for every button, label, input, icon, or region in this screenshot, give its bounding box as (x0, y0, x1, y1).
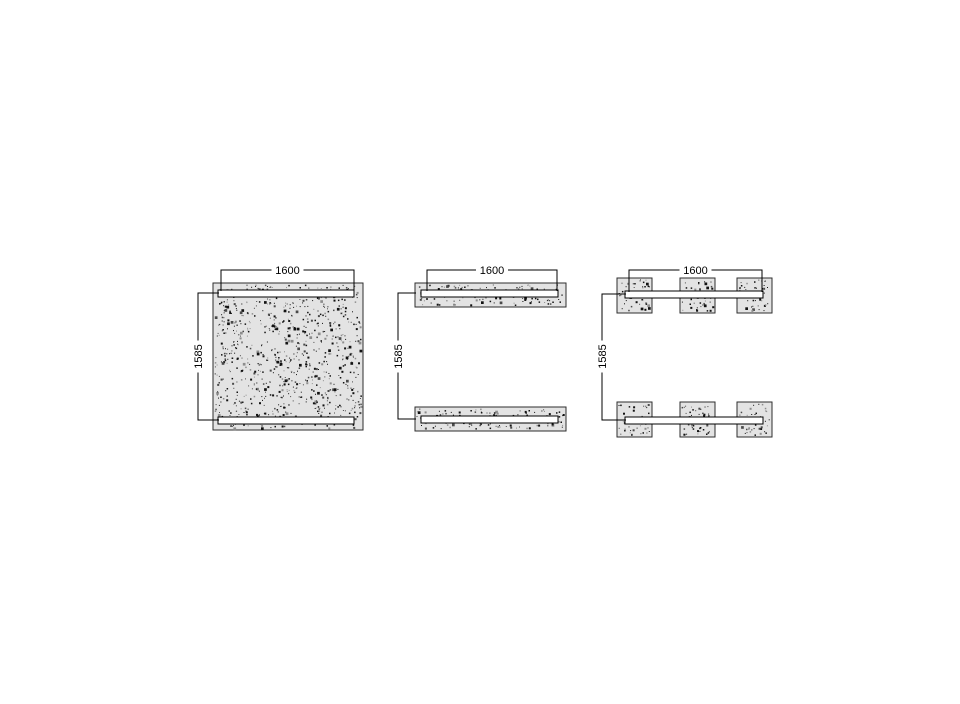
speckle-dot (325, 316, 326, 317)
speckle-dot (475, 428, 477, 430)
speckle-dot (317, 411, 319, 413)
speckle-dot (229, 370, 230, 371)
speckle-dot (267, 358, 268, 359)
speckle-dot (256, 285, 257, 286)
speckle-dot (218, 333, 219, 334)
speckle-dot (254, 384, 255, 385)
speckle-dot (446, 285, 449, 288)
speckle-dot (243, 315, 244, 316)
speckle-dot (355, 402, 356, 403)
speckle-dot (633, 429, 635, 431)
speckle-dot (634, 283, 636, 285)
speckle-dot (267, 386, 269, 388)
speckle-dot (267, 360, 268, 361)
speckle-dot (755, 300, 756, 301)
speckle-dot (274, 305, 276, 307)
speckle-dot (316, 408, 317, 409)
speckle-dot (249, 364, 250, 365)
speckle-dot (357, 292, 359, 294)
speckle-dot (229, 410, 231, 412)
speckle-dot (528, 285, 529, 286)
speckle-dot (227, 359, 228, 360)
speckle-dot (252, 355, 254, 357)
speckle-dot (421, 425, 422, 426)
speckle-dot (349, 346, 352, 349)
speckle-dot (328, 349, 331, 352)
speckle-dot (347, 388, 348, 389)
speckle-dot (547, 425, 548, 426)
speckle-dot (305, 363, 307, 365)
speckle-dot (487, 413, 488, 414)
speckle-dot (264, 405, 265, 406)
speckle-dot (449, 427, 451, 429)
speckle-dot (225, 333, 226, 334)
speckle-dot (756, 413, 758, 415)
speckle-dot (261, 396, 262, 397)
speckle-dot (232, 383, 234, 385)
speckle-dot (317, 323, 318, 324)
speckle-dot (282, 426, 284, 428)
speckle-dot (321, 340, 323, 342)
speckle-dot (633, 410, 635, 412)
speckle-dot (225, 358, 227, 360)
speckle-dot (233, 427, 236, 430)
speckle-dot (709, 431, 710, 432)
speckle-dot (277, 352, 279, 354)
speckle-dot (626, 300, 627, 301)
speckle-dot (230, 412, 232, 414)
speckle-dot (297, 371, 298, 372)
speckle-dot (221, 343, 223, 345)
speckle-dot (323, 304, 324, 305)
speckle-dot (682, 302, 683, 303)
speckle-dot (644, 309, 646, 311)
fig2-height-dimension-label: 1585 (393, 344, 405, 368)
speckle-dot (643, 406, 644, 407)
speckle-dot (761, 426, 763, 428)
speckle-dot (308, 288, 309, 289)
speckle-dot (352, 311, 353, 312)
speckle-dot (263, 355, 265, 357)
speckle-dot (356, 294, 358, 296)
speckle-dot (316, 384, 318, 386)
speckle-dot (306, 353, 308, 355)
speckle-dot (326, 287, 328, 289)
speckle-dot (321, 363, 323, 365)
speckle-dot (280, 365, 282, 367)
speckle-dot (243, 331, 245, 333)
speckle-dot (288, 285, 290, 287)
speckle-dot (699, 431, 700, 432)
speckle-dot (476, 299, 478, 301)
speckle-dot (231, 321, 234, 324)
speckle-dot (284, 370, 285, 371)
speckle-dot (296, 356, 297, 357)
speckle-dot (328, 311, 330, 313)
speckle-dot (459, 285, 460, 286)
speckle-dot (323, 380, 324, 381)
speckle-dot (233, 388, 234, 389)
speckle-dot (326, 298, 327, 299)
speckle-dot (358, 362, 360, 364)
speckle-dot (284, 337, 285, 338)
speckle-dot (352, 353, 353, 354)
speckle-dot (330, 382, 332, 384)
speckle-dot (549, 413, 551, 415)
speckle-dot (288, 335, 291, 338)
speckle-dot (685, 406, 686, 407)
speckle-dot (348, 288, 349, 289)
speckle-dot (290, 323, 292, 325)
speckle-dot (305, 285, 307, 287)
speckle-dot (692, 409, 694, 411)
speckle-dot (744, 287, 745, 288)
speckle-dot (272, 331, 274, 333)
speckle-dot (353, 356, 354, 357)
speckle-dot (223, 348, 224, 349)
speckle-dot (700, 302, 702, 304)
speckle-dot (246, 302, 247, 303)
speckle-dot (710, 281, 712, 283)
speckle-dot (499, 298, 501, 300)
speckle-dot (699, 428, 701, 430)
speckle-dot (274, 319, 275, 320)
speckle-dot (348, 399, 349, 400)
speckle-dot (275, 366, 276, 367)
speckle-dot (273, 414, 274, 415)
speckle-dot (227, 328, 228, 329)
speckle-dot (753, 300, 755, 302)
speckle-dot (296, 346, 297, 347)
speckle-dot (259, 391, 260, 392)
speckle-dot (747, 415, 748, 416)
speckle-dot (223, 333, 225, 335)
speckle-dot (236, 399, 237, 400)
speckle-dot (233, 344, 235, 346)
speckle-dot (309, 369, 310, 370)
speckle-dot (481, 412, 483, 414)
speckle-dot (258, 288, 259, 289)
speckle-dot (418, 411, 421, 414)
speckle-dot (287, 380, 289, 382)
speckle-dot (704, 281, 705, 282)
speckle-dot (316, 337, 318, 339)
speckle-dot (622, 308, 623, 309)
speckle-dot (519, 427, 520, 428)
speckle-dot (225, 348, 226, 349)
speckle-dot (646, 280, 647, 281)
speckle-dot (270, 318, 271, 319)
speckle-dot (264, 301, 267, 304)
speckle-dot (279, 391, 281, 393)
speckle-dot (275, 360, 276, 361)
speckle-dot (219, 405, 220, 406)
speckle-dot (248, 331, 250, 333)
speckle-dot (322, 315, 324, 317)
speckle-dot (631, 434, 633, 436)
speckle-dot (516, 428, 517, 429)
speckle-dot (313, 349, 314, 350)
speckle-dot (691, 407, 692, 408)
speckle-dot (232, 358, 234, 360)
speckle-dot (759, 309, 760, 310)
speckle-dot (250, 348, 252, 350)
speckle-dot (703, 414, 705, 416)
speckle-dot (315, 394, 316, 395)
speckle-dot (434, 298, 436, 300)
speckle-dot (295, 381, 297, 383)
speckle-dot (338, 350, 340, 352)
speckle-dot (268, 414, 269, 415)
speckle-dot (685, 282, 686, 283)
speckle-dot (764, 431, 765, 432)
speckle-dot (330, 389, 332, 391)
speckle-dot (234, 322, 235, 323)
speckle-dot (455, 304, 456, 305)
speckle-dot (225, 309, 228, 312)
speckle-dot (220, 402, 221, 403)
speckle-dot (645, 406, 647, 408)
speckle-dot (304, 306, 305, 307)
speckle-dot (277, 328, 279, 330)
speckle-dot (223, 347, 224, 348)
speckle-dot (767, 425, 768, 426)
speckle-dot (217, 391, 218, 392)
speckle-dot (247, 336, 248, 337)
speckle-dot (620, 295, 621, 296)
speckle-dot (221, 379, 223, 381)
speckle-dot (544, 302, 545, 303)
speckle-dot (223, 398, 225, 400)
speckle-dot (303, 384, 304, 385)
speckle-dot (288, 367, 290, 369)
speckle-dot (237, 395, 238, 396)
speckle-dot (322, 323, 323, 324)
speckle-dot (232, 345, 233, 346)
speckle-dot (480, 409, 482, 411)
speckle-dot (562, 425, 563, 426)
speckle-dot (263, 354, 264, 355)
speckle-dot (549, 300, 550, 301)
speckle-dot (562, 427, 563, 428)
speckle-dot (763, 288, 765, 290)
speckle-dot (288, 340, 291, 343)
speckle-dot (227, 349, 228, 350)
speckle-dot (746, 283, 748, 285)
speckle-dot (219, 412, 220, 413)
speckle-dot (710, 310, 712, 312)
speckle-dot (269, 381, 270, 382)
speckle-dot (318, 406, 320, 408)
speckle-dot (221, 303, 222, 304)
speckle-dot (264, 388, 267, 391)
speckle-dot (690, 307, 692, 309)
speckle-dot (630, 430, 631, 431)
speckle-dot (624, 429, 626, 431)
speckle-dot (283, 307, 284, 308)
speckle-dot (233, 341, 234, 342)
speckle-dot (329, 402, 331, 404)
speckle-dot (286, 355, 288, 357)
speckle-dot (293, 354, 294, 355)
speckle-dot (433, 427, 435, 429)
speckle-dot (291, 340, 294, 343)
speckle-dot (510, 427, 512, 429)
speckle-dot (281, 397, 282, 398)
speckle-dot (290, 396, 291, 397)
speckle-dot (343, 316, 345, 318)
speckle-dot (230, 415, 231, 416)
speckle-dot (284, 426, 286, 428)
panel-drawing-svg: 1600 1600 1600 1585 1585 1585 (0, 0, 960, 704)
speckle-dot (282, 321, 284, 323)
speckle-dot (514, 303, 515, 304)
speckle-dot (272, 394, 274, 396)
speckle-dot (697, 430, 699, 432)
speckle-dot (346, 357, 349, 360)
speckle-dot (279, 322, 281, 324)
speckle-dot (358, 401, 360, 403)
speckle-dot (684, 428, 686, 430)
speckle-dot (640, 425, 641, 426)
speckle-dot (329, 322, 331, 324)
speckle-dot (636, 428, 638, 430)
speckle-dot (330, 287, 331, 288)
speckle-dot (289, 358, 290, 359)
speckle-dot (219, 324, 220, 325)
speckle-dot (328, 373, 329, 374)
speckle-dot (739, 287, 741, 289)
slot-cutout (421, 416, 558, 423)
speckle-dot (318, 413, 319, 414)
speckle-dot (534, 412, 535, 413)
speckle-dot (312, 300, 313, 301)
speckle-dot (479, 299, 480, 300)
speckle-dot (299, 334, 300, 335)
speckle-dot (646, 283, 649, 286)
speckle-dot (231, 353, 232, 354)
speckle-dot (470, 304, 472, 306)
speckle-dot (303, 319, 305, 321)
speckle-dot (351, 395, 353, 397)
speckle-dot (259, 414, 260, 415)
speckle-dot (267, 299, 268, 300)
speckle-dot (305, 380, 306, 381)
speckle-dot (274, 354, 275, 355)
speckle-dot (490, 428, 492, 430)
speckle-dot (552, 424, 554, 426)
speckle-dot (229, 353, 230, 354)
speckle-dot (506, 426, 507, 427)
speckle-dot (341, 340, 342, 341)
speckle-dot (233, 404, 234, 405)
speckle-dot (444, 287, 445, 288)
speckle-dot (222, 317, 224, 319)
speckle-dot (692, 427, 693, 428)
speckle-dot (741, 426, 744, 429)
speckle-dot (277, 361, 280, 364)
speckle-dot (343, 304, 344, 305)
speckle-dot (493, 285, 494, 286)
speckle-dot (455, 287, 457, 289)
speckle-dot (320, 408, 321, 409)
speckle-dot (245, 408, 247, 410)
speckle-dot (496, 426, 497, 427)
speckle-dot (297, 334, 298, 335)
speckle-dot (339, 405, 341, 407)
speckle-dot (294, 390, 295, 391)
speckle-dot (459, 300, 460, 301)
speckle-dot (334, 384, 335, 385)
speckle-dot (283, 414, 285, 416)
speckle-dot (529, 410, 531, 412)
speckle-dot (299, 403, 300, 404)
speckle-dot (222, 329, 224, 331)
speckle-dot (283, 396, 284, 397)
speckle-dot (227, 299, 228, 300)
speckle-dot (559, 416, 561, 418)
speckle-dot (325, 393, 326, 394)
speckle-dot (619, 428, 620, 429)
speckle-dot (764, 285, 765, 286)
speckle-dot (359, 404, 361, 406)
speckle-dot (751, 310, 753, 312)
speckle-dot (327, 306, 328, 307)
speckle-dot (275, 326, 277, 328)
speckle-dot (451, 412, 452, 413)
speckle-dot (306, 361, 308, 363)
speckle-dot (273, 372, 274, 373)
speckle-dot (306, 299, 308, 301)
speckle-dot (760, 433, 762, 435)
speckle-dot (522, 298, 523, 299)
speckle-dot (307, 312, 309, 314)
speckle-dot (318, 333, 321, 336)
speckle-dot (755, 424, 757, 426)
speckle-dot (354, 405, 356, 407)
speckle-dot (297, 328, 300, 331)
slot-cutout (218, 417, 354, 424)
speckle-dot (293, 307, 294, 308)
speckle-dot (287, 367, 288, 368)
speckle-dot (357, 297, 358, 298)
speckle-dot (337, 389, 338, 390)
speckle-dot (318, 377, 321, 380)
speckle-dot (321, 288, 322, 289)
speckle-dot (251, 345, 252, 346)
speckle-dot (350, 388, 352, 390)
speckle-dot (741, 412, 743, 414)
speckle-dot (696, 309, 698, 311)
speckle-dot (223, 379, 224, 380)
speckle-dot (356, 328, 358, 330)
speckle-dot (634, 287, 635, 288)
speckle-dot (289, 390, 290, 391)
speckle-dot (699, 288, 701, 290)
speckle-dot (247, 362, 248, 363)
speckle-dot (217, 365, 218, 366)
speckle-dot (350, 362, 353, 365)
speckle-dot (272, 349, 273, 350)
speckle-dot (266, 326, 267, 327)
speckle-dot (235, 347, 236, 348)
speckle-dot (624, 430, 626, 432)
speckle-dot (294, 372, 295, 373)
speckle-dot (462, 287, 463, 288)
speckle-dot (215, 362, 217, 364)
speckle-dot (559, 411, 561, 413)
speckle-dot (490, 301, 492, 303)
